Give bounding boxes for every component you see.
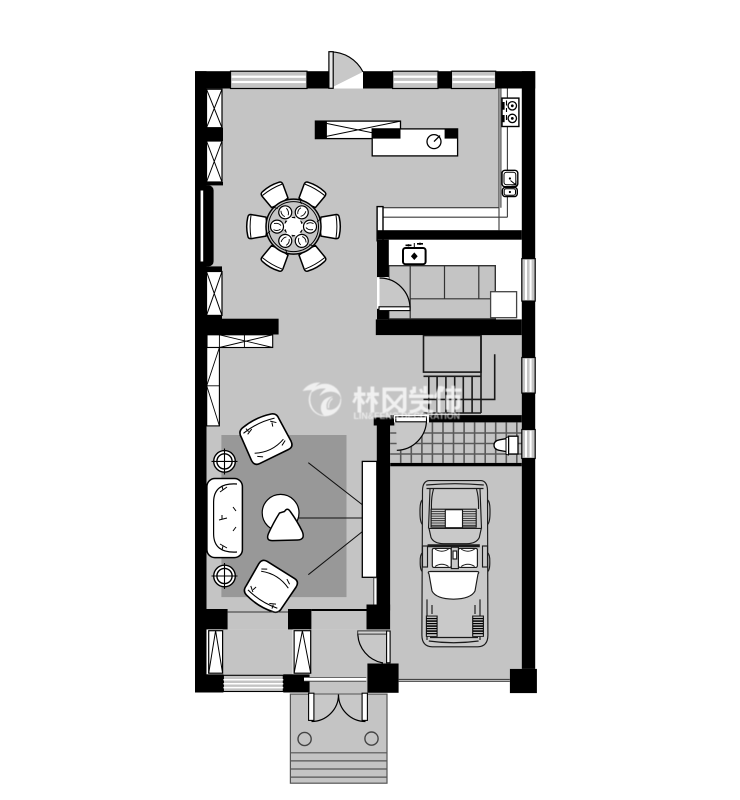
svg-text:LIN&FENG DECORATION: LIN&FENG DECORATION	[354, 411, 461, 421]
